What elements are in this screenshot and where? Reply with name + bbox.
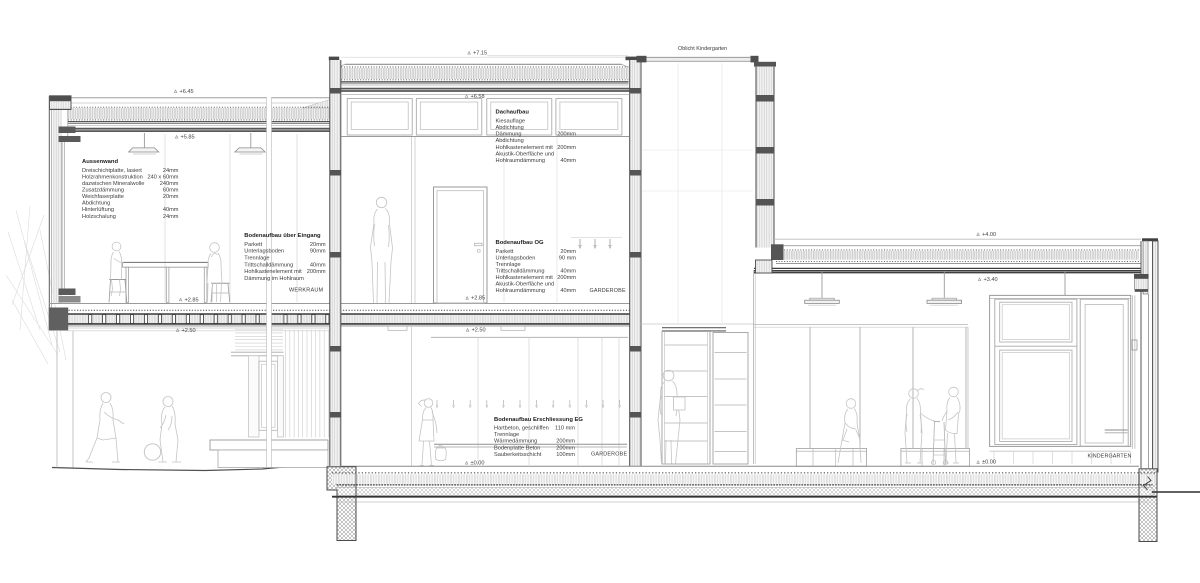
svg-text:Parkett: Parkett — [496, 249, 514, 255]
svg-text:±0.00: ±0.00 — [471, 461, 485, 467]
svg-text:60mm: 60mm — [163, 188, 179, 194]
svg-text:240 x 60mm: 240 x 60mm — [147, 174, 178, 180]
svg-text:Bodenplatte Beton: Bodenplatte Beton — [494, 445, 540, 451]
svg-text:90mm: 90mm — [310, 249, 326, 255]
svg-text:110 mm: 110 mm — [555, 426, 575, 432]
svg-text:±0.00: ±0.00 — [982, 460, 996, 466]
svg-text:+4.00: +4.00 — [982, 232, 996, 238]
svg-text:40mm: 40mm — [560, 269, 576, 275]
svg-text:Hartbeton, geschliffen: Hartbeton, geschliffen — [494, 426, 549, 432]
svg-text:Abdichtung: Abdichtung — [82, 201, 110, 207]
svg-text:200mm: 200mm — [557, 145, 576, 151]
svg-text:Hinterlüftung: Hinterlüftung — [82, 207, 114, 213]
svg-text:240mm: 240mm — [160, 181, 179, 187]
svg-text:Akustik-Oberfläche und: Akustik-Oberfläche und — [496, 282, 555, 288]
svg-text:100mm: 100mm — [556, 452, 575, 458]
svg-text:24mm: 24mm — [163, 214, 179, 220]
svg-text:+6.58: +6.58 — [471, 94, 485, 100]
svg-text:200mm: 200mm — [557, 132, 576, 138]
svg-text:Dreischichtplatte, lasiert: Dreischichtplatte, lasiert — [82, 168, 142, 174]
svg-text:Oblicht Kindergarten: Oblicht Kindergarten — [678, 46, 727, 52]
svg-text:200mm: 200mm — [307, 269, 326, 275]
svg-text:Holzrahmenkonstruktion: Holzrahmenkonstruktion — [82, 174, 143, 180]
svg-text:200mm: 200mm — [556, 445, 575, 451]
svg-text:+2.50: +2.50 — [472, 328, 486, 334]
svg-text:40mm: 40mm — [310, 262, 326, 268]
svg-text:40mm: 40mm — [560, 288, 576, 294]
svg-text:Unterlagsboden: Unterlagsboden — [496, 255, 536, 261]
svg-text:+5.85: +5.85 — [181, 135, 195, 141]
svg-text:Bodenaufbau OG: Bodenaufbau OG — [496, 240, 545, 246]
svg-text:20mm: 20mm — [310, 242, 326, 248]
svg-text:KINDERGARTEN: KINDERGARTEN — [1088, 453, 1132, 459]
svg-text:+6.45: +6.45 — [180, 89, 194, 95]
svg-text:Trittschalldämmung: Trittschalldämmung — [244, 262, 293, 268]
svg-text:Bodenaufbau Erschliessung EG: Bodenaufbau Erschliessung EG — [494, 417, 583, 423]
svg-text:Dämmung: Dämmung — [496, 132, 522, 138]
svg-text:40mm: 40mm — [560, 158, 576, 164]
svg-text:+2.85: +2.85 — [185, 297, 199, 303]
svg-text:20mm: 20mm — [163, 194, 179, 200]
svg-text:20mm: 20mm — [560, 249, 576, 255]
svg-text:+3.40: +3.40 — [984, 277, 998, 283]
svg-text:Trennlage: Trennlage — [496, 262, 521, 268]
svg-text:GARDEROBE: GARDEROBE — [590, 288, 626, 294]
svg-text:Sauberkeitsschicht: Sauberkeitsschicht — [494, 452, 542, 458]
svg-text:Hohlraumdämmung: Hohlraumdämmung — [496, 158, 546, 164]
svg-text:Hohlraumdämmung: Hohlraumdämmung — [496, 288, 546, 294]
svg-text:Akustik-Oberfläche und: Akustik-Oberfläche und — [496, 151, 555, 157]
svg-text:Dämmung im Hohlraum: Dämmung im Hohlraum — [244, 276, 304, 282]
svg-text:Trennlage: Trennlage — [244, 256, 269, 262]
svg-text:Weichfaserplatte: Weichfaserplatte — [82, 194, 124, 200]
svg-text:Abdichtung: Abdichtung — [496, 125, 524, 131]
svg-text:GARDEROBE: GARDEROBE — [591, 451, 627, 457]
svg-text:Trittschalldämmung: Trittschalldämmung — [496, 269, 545, 275]
svg-text:+2.50: +2.50 — [182, 328, 196, 334]
svg-text:+7.15: +7.15 — [473, 51, 487, 57]
svg-text:200mm: 200mm — [556, 439, 575, 445]
svg-text:Hohlkastenelement mit: Hohlkastenelement mit — [496, 145, 554, 151]
svg-text:+2.85: +2.85 — [471, 296, 485, 302]
svg-text:Wärmedämmung: Wärmedämmung — [494, 439, 537, 445]
svg-text:Hohlkastenelement mit: Hohlkastenelement mit — [496, 275, 554, 281]
svg-text:Kiesauflage: Kiesauflage — [496, 119, 525, 125]
svg-text:Trennlage: Trennlage — [494, 432, 519, 438]
svg-text:Dachaufbau: Dachaufbau — [496, 110, 530, 116]
svg-text:Zusatzdämmung: Zusatzdämmung — [82, 188, 124, 194]
svg-text:Bodenaufbau über Eingang: Bodenaufbau über Eingang — [244, 233, 321, 239]
svg-text:24mm: 24mm — [163, 168, 179, 174]
svg-text:90 mm: 90 mm — [559, 255, 577, 261]
svg-text:Holzschalung: Holzschalung — [82, 214, 116, 220]
svg-text:WERKRAUM: WERKRAUM — [289, 288, 324, 294]
svg-text:40mm: 40mm — [163, 207, 179, 213]
svg-text:200mm: 200mm — [557, 275, 576, 281]
svg-text:Abdichtung: Abdichtung — [496, 138, 524, 144]
svg-text:Parkett: Parkett — [244, 242, 262, 248]
svg-text:dazwischen Mineralwolle: dazwischen Mineralwolle — [82, 181, 144, 187]
svg-text:Aussenwand: Aussenwand — [82, 159, 118, 165]
svg-text:Unterlagsboden: Unterlagsboden — [244, 249, 284, 255]
svg-text:Hohlkastenelement mit: Hohlkastenelement mit — [244, 269, 302, 275]
